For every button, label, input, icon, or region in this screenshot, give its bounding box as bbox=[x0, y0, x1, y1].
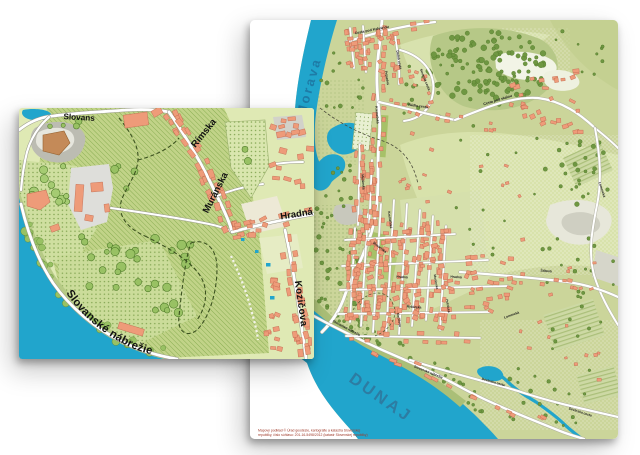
svg-text:Mapový podklad © Úrad geodézie: Mapový podklad © Úrad geodézie, kartogra… bbox=[258, 428, 360, 433]
svg-text:Štítová: Štítová bbox=[540, 268, 552, 274]
svg-text:Hradná: Hradná bbox=[450, 275, 462, 280]
svg-text:Slovans: Slovans bbox=[63, 112, 95, 123]
svg-text:Hradná: Hradná bbox=[396, 275, 408, 280]
svg-text:republiky, číslo súhlasu: 201-: republiky, číslo súhlasu: 201-16-5498/20… bbox=[258, 433, 368, 437]
